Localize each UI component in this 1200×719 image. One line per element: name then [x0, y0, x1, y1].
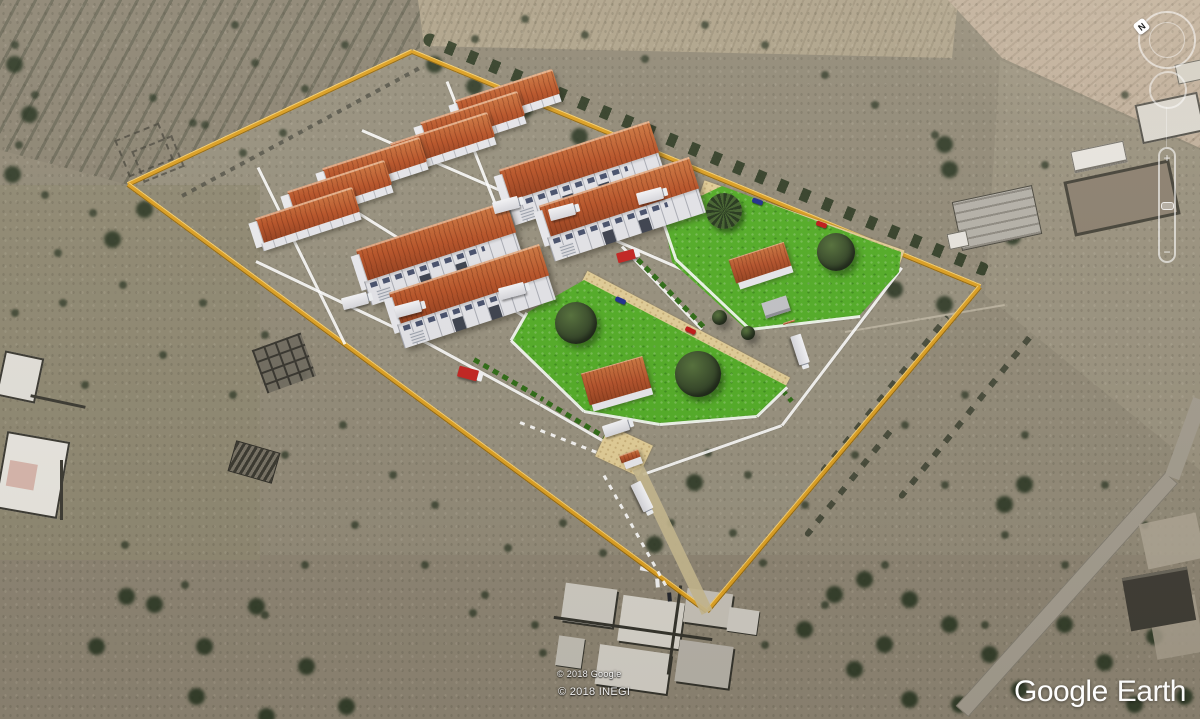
tree [712, 310, 727, 325]
compass-control[interactable]: N [1138, 11, 1196, 69]
north-label: N [1136, 21, 1147, 33]
zoom-slider-thumb[interactable] [1161, 202, 1174, 210]
left-compound [0, 340, 100, 560]
parked-car [667, 592, 672, 601]
attribution-inegi: © 2018 INEGI [558, 686, 630, 698]
louver-vent [559, 242, 576, 257]
compound-wall [30, 394, 85, 409]
farm-shed-row [1070, 141, 1127, 174]
tree [555, 302, 597, 344]
village-house [555, 635, 585, 668]
tree [741, 326, 755, 340]
louver-vent [409, 329, 426, 344]
google-earth-logo: GoogleEarth [1014, 675, 1186, 709]
zoom-slider[interactable]: + − [1158, 147, 1176, 263]
village-house [726, 607, 759, 635]
courtyard [6, 460, 38, 490]
tree [817, 233, 855, 271]
zoom-out-button[interactable]: − [1160, 246, 1174, 258]
google-earth-viewport[interactable]: N + − GoogleEarth © 2018 Google © 2018 I… [0, 0, 1200, 719]
control-connector [1166, 107, 1167, 147]
attribution-google: © 2018 Google [557, 669, 622, 679]
move-joystick-icon[interactable] [1149, 71, 1187, 109]
zoom-in-button[interactable]: + [1160, 152, 1174, 164]
tree [675, 351, 721, 397]
logo-brand: Google [1014, 675, 1108, 708]
dark-roof-building [1122, 567, 1196, 632]
village-house [674, 639, 733, 688]
logo-product: Earth [1117, 675, 1186, 708]
tree-scatter [0, 0, 9, 9]
compound-wall [60, 460, 63, 520]
palm-tree [706, 193, 742, 229]
compass-inner-ring-icon[interactable] [1149, 22, 1185, 58]
